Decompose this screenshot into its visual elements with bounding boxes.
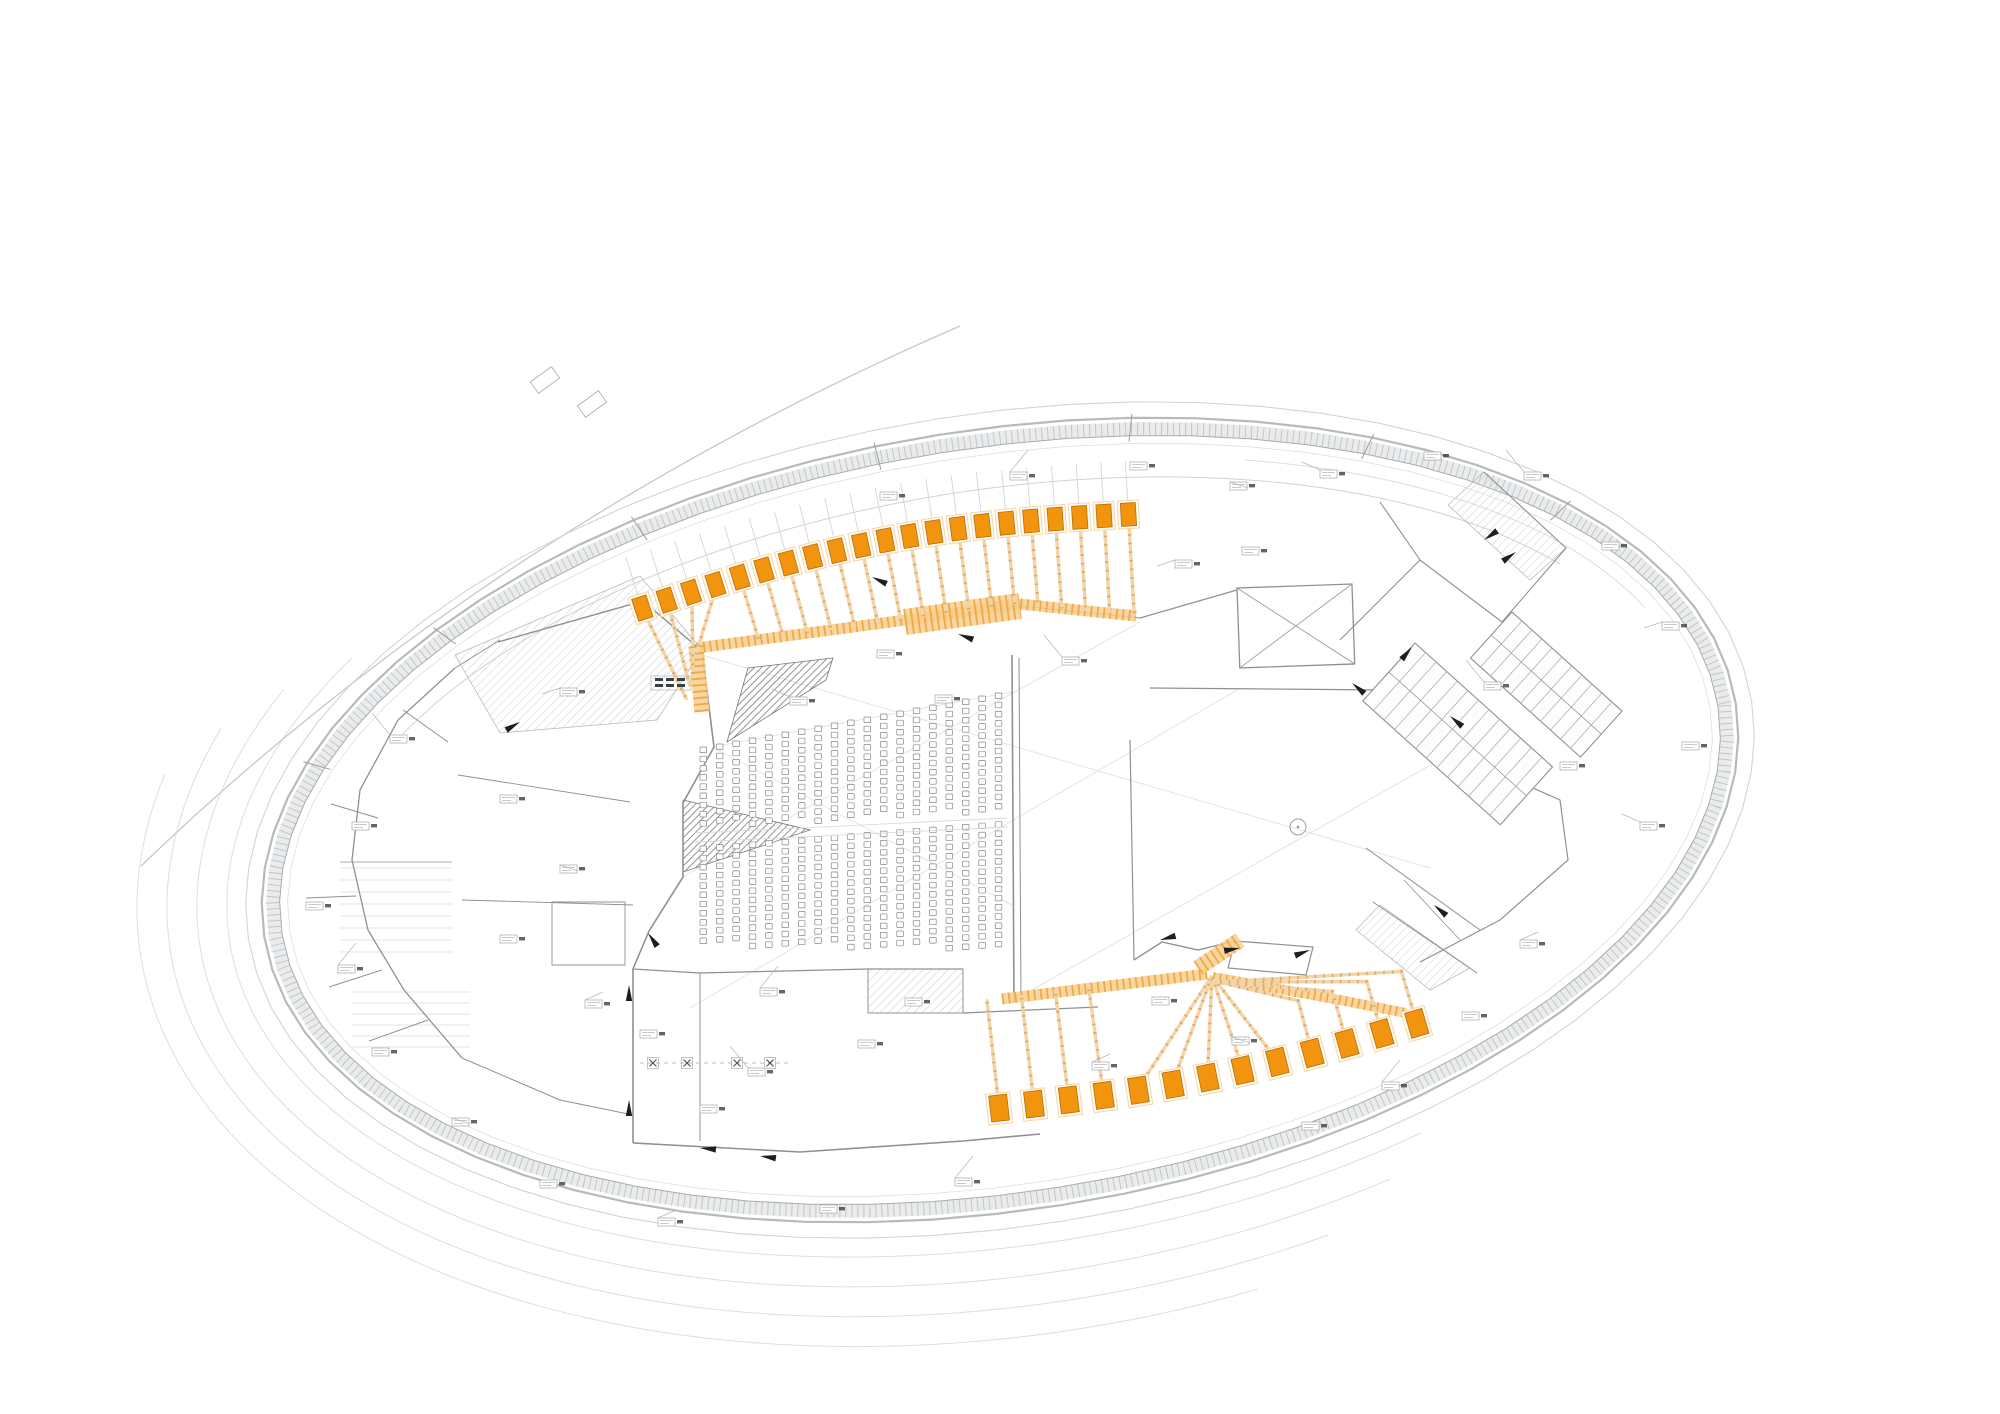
annotation-box <box>1506 450 1549 480</box>
annotation-box <box>306 902 331 910</box>
annotation-box <box>560 865 585 873</box>
roof-beam-anchor <box>1124 1074 1153 1108</box>
annotation-box <box>1152 997 1177 1005</box>
roof-beam-anchor <box>986 1092 1013 1125</box>
roof-beam-anchor <box>1090 1079 1118 1113</box>
void-rooms <box>1237 584 1355 668</box>
annotation-box <box>585 992 610 1008</box>
annotation-box <box>1462 1012 1487 1020</box>
stair-rooms <box>1363 612 1622 825</box>
annotation-box <box>1520 932 1545 948</box>
annotation-box <box>1382 1060 1407 1090</box>
void-room-x <box>1237 584 1355 668</box>
roof-beam-anchor <box>1020 1088 1047 1122</box>
floor-plan <box>0 0 2000 1414</box>
annotation-box <box>955 1156 980 1186</box>
annotation-box <box>1644 622 1687 630</box>
annotation-box <box>1622 814 1665 830</box>
roof-beam-anchor <box>1041 465 1067 534</box>
annotation-box <box>452 1118 477 1126</box>
annotation-box <box>352 822 377 830</box>
roof-beam-anchor <box>1262 1044 1293 1080</box>
annotation-box <box>877 650 902 658</box>
annotation-box <box>658 1210 683 1226</box>
annotation-box <box>1230 482 1255 490</box>
roof-beam-anchor <box>1055 1083 1083 1117</box>
floor-symbols <box>640 819 1306 1069</box>
annotation-box <box>640 1030 665 1038</box>
roof-beam-anchor <box>1115 460 1140 529</box>
annotation-box <box>880 492 905 500</box>
annotation-box <box>730 1046 773 1076</box>
annotation-box <box>858 1040 883 1048</box>
blueprint-page <box>0 0 2000 1414</box>
roof-beam-anchor <box>1090 462 1115 531</box>
roof-beam-anchor <box>1401 1006 1433 1042</box>
roof-beam-anchor <box>1297 1035 1328 1071</box>
annotation-box <box>1302 462 1345 478</box>
annotation-box <box>372 1048 397 1056</box>
annotation-box <box>1232 1037 1257 1045</box>
annotation-box <box>700 1105 725 1113</box>
annotation-box <box>1044 635 1087 665</box>
roof-beam-anchor <box>1228 1053 1258 1089</box>
annotation-box <box>1242 547 1267 555</box>
annotation-box <box>338 943 363 973</box>
annotation-box <box>1424 452 1449 460</box>
roof-beam-anchor <box>1366 1016 1398 1052</box>
annotation-box <box>1560 762 1585 770</box>
roof-beam-anchor <box>966 471 995 540</box>
annotation-box <box>1010 450 1035 480</box>
annotation-box <box>500 935 525 943</box>
annotation-box <box>1682 742 1707 750</box>
annotation-box <box>1157 560 1200 568</box>
annotation-box <box>1130 462 1155 470</box>
annotation-box <box>1092 1054 1117 1070</box>
site-tangent-line <box>141 326 960 866</box>
roof-beam-anchor <box>1193 1061 1223 1096</box>
roof-beam-anchor <box>1159 1067 1188 1102</box>
roof-beam-anchor <box>1066 463 1091 532</box>
annotation-box <box>500 795 525 803</box>
roof-beam-anchor <box>1331 1026 1362 1062</box>
